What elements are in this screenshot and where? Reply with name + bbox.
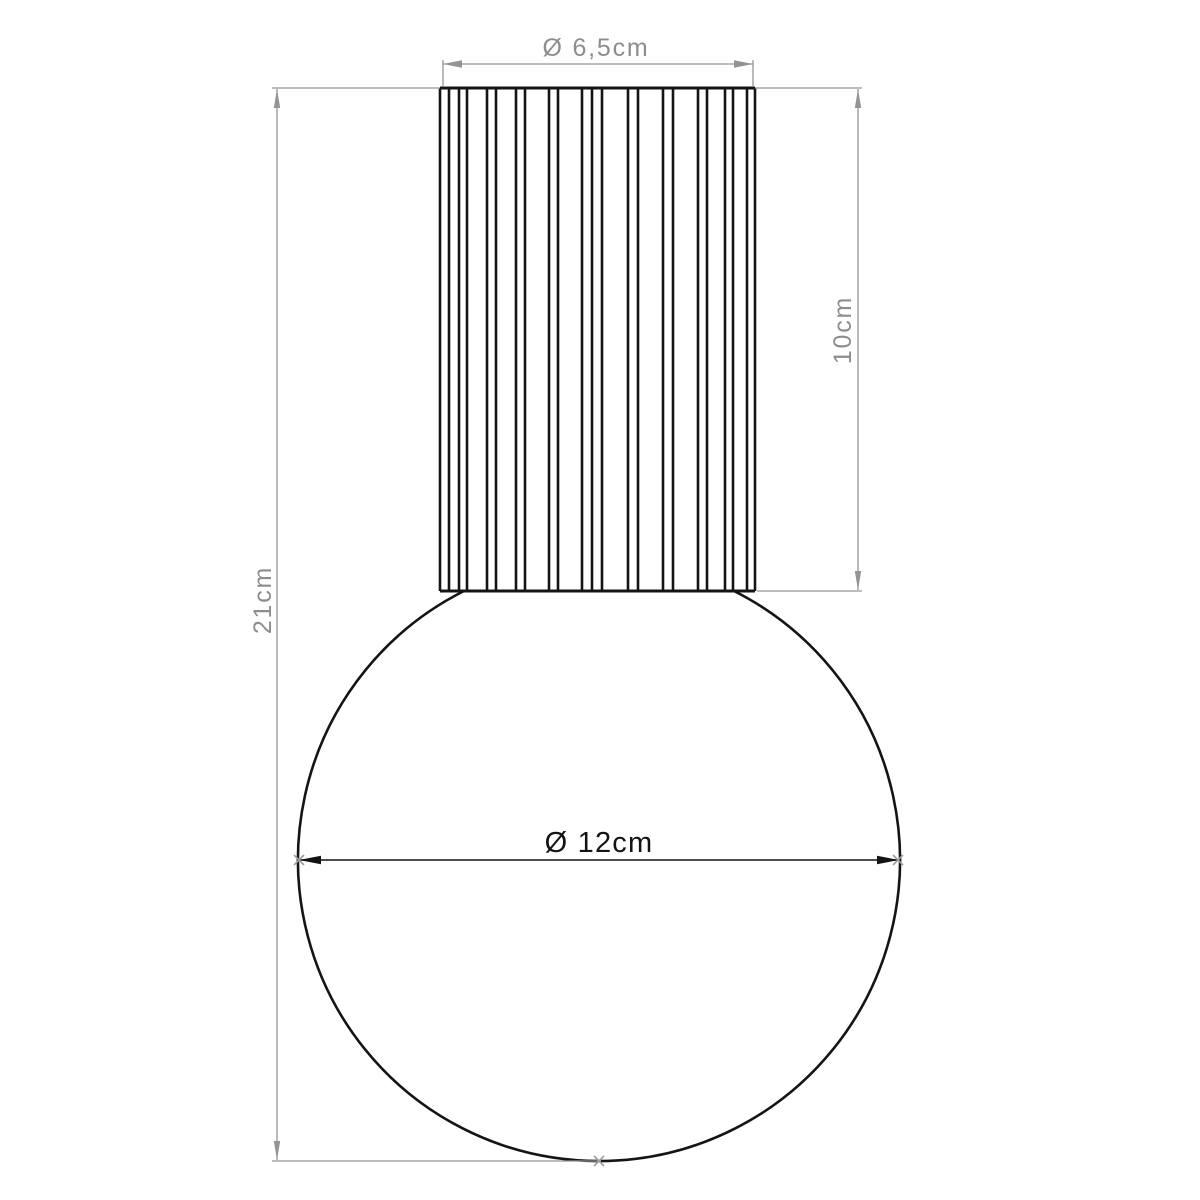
dim-globe-diameter: Ø 12cm <box>294 827 903 865</box>
arrow-right-icon <box>734 60 753 67</box>
arrow-up-icon <box>274 89 280 108</box>
dim-label-shade-height: 10cm <box>829 296 857 364</box>
dim-total-height: 21cm <box>249 88 604 1166</box>
dim-label-total-height: 21cm <box>249 566 277 634</box>
arrow-up-icon <box>855 89 861 108</box>
drawing-canvas: Ø 6,5cm 21cm 10cm Ø 12 <box>0 0 1200 1200</box>
lamp-shade <box>440 88 755 591</box>
arrow-down-icon <box>855 571 861 590</box>
dim-top-diameter: Ø 6,5cm <box>443 34 753 86</box>
lamp-globe-outline <box>298 591 900 1161</box>
dim-label-globe-diameter: Ø 12cm <box>545 827 654 859</box>
arrow-down-icon <box>274 1141 280 1160</box>
dim-label-top-diameter: Ø 6,5cm <box>542 34 649 62</box>
shade-ribs <box>440 88 755 591</box>
arrow-left-icon <box>443 60 462 67</box>
lamp-dimension-drawing: Ø 6,5cm 21cm 10cm Ø 12 <box>0 0 1200 1200</box>
dim-shade-height: 10cm <box>755 88 862 591</box>
